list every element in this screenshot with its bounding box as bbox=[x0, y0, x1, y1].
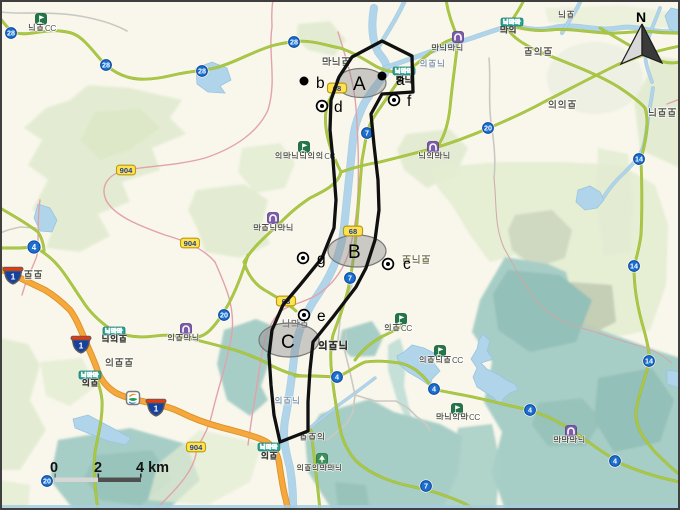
svg-text:e: e bbox=[317, 308, 326, 325]
svg-text:28: 28 bbox=[7, 29, 15, 38]
svg-text:14: 14 bbox=[630, 262, 638, 271]
svg-text:1: 1 bbox=[11, 272, 16, 282]
svg-text:4: 4 bbox=[613, 457, 617, 466]
svg-text:d: d bbox=[334, 99, 343, 116]
svg-text:4: 4 bbox=[528, 406, 532, 415]
svg-text:g: g bbox=[317, 251, 326, 268]
svg-text:C: C bbox=[281, 332, 295, 353]
svg-text:904: 904 bbox=[120, 166, 133, 175]
svg-text:28: 28 bbox=[290, 38, 298, 47]
svg-text:28: 28 bbox=[102, 61, 110, 70]
svg-text:C: C bbox=[50, 23, 56, 33]
svg-text:c: c bbox=[403, 256, 411, 273]
svg-text:20: 20 bbox=[484, 124, 492, 133]
svg-text:7: 7 bbox=[348, 274, 352, 283]
svg-text:C: C bbox=[457, 355, 463, 365]
svg-text:C: C bbox=[474, 412, 480, 422]
svg-text:C: C bbox=[406, 323, 412, 333]
svg-text:20: 20 bbox=[43, 477, 51, 486]
svg-text:B: B bbox=[348, 242, 361, 263]
svg-text:1: 1 bbox=[154, 404, 159, 414]
svg-text:14: 14 bbox=[635, 155, 643, 164]
svg-text:7: 7 bbox=[424, 482, 428, 491]
svg-text:0: 0 bbox=[50, 460, 58, 476]
svg-text:14: 14 bbox=[645, 357, 653, 366]
svg-text:4: 4 bbox=[432, 385, 436, 394]
svg-text:68: 68 bbox=[349, 227, 357, 236]
svg-text:a: a bbox=[396, 72, 405, 89]
svg-text:7: 7 bbox=[365, 129, 369, 138]
svg-text:f: f bbox=[407, 93, 412, 110]
svg-text:b: b bbox=[316, 75, 325, 92]
svg-text:N: N bbox=[636, 9, 646, 25]
svg-text:4: 4 bbox=[32, 243, 37, 252]
svg-text:A: A bbox=[353, 74, 366, 95]
svg-text:1: 1 bbox=[79, 341, 84, 351]
svg-text:4: 4 bbox=[335, 373, 339, 382]
svg-text:904: 904 bbox=[184, 239, 197, 248]
svg-text:28: 28 bbox=[198, 67, 206, 76]
svg-text:20: 20 bbox=[220, 311, 228, 320]
svg-text:904: 904 bbox=[190, 443, 203, 452]
